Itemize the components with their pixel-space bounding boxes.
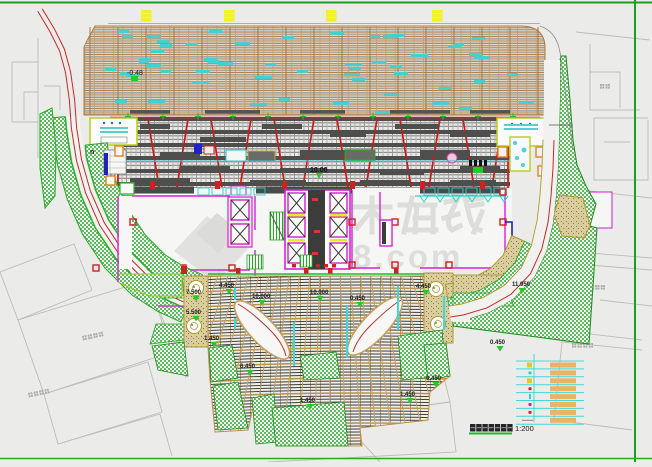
svg-text:0.450: 0.450 [350,296,366,302]
svg-text:-0.48: -0.48 [127,70,143,77]
svg-text:7.500: 7.500 [186,290,202,296]
svg-text:5.500: 5.500 [186,310,202,316]
svg-text:4.450: 4.450 [416,284,432,290]
svg-text:6.450: 6.450 [240,364,256,370]
svg-text:4.450: 4.450 [219,283,235,289]
svg-text:8.com: 8.com [353,238,463,275]
svg-text:1.450: 1.450 [400,392,416,398]
svg-text:11.950: 11.950 [512,282,531,288]
svg-text:10.000: 10.000 [252,294,271,300]
svg-text:0.450: 0.450 [490,340,506,346]
svg-text:10.00: 10.00 [310,167,328,174]
svg-text:1.450: 1.450 [300,398,316,404]
svg-text:n: n [90,149,94,156]
svg-text:1:200: 1:200 [515,424,534,433]
svg-text:10.000: 10.000 [310,290,329,296]
svg-text:1.450: 1.450 [204,336,220,342]
svg-text:0.450: 0.450 [426,376,442,382]
